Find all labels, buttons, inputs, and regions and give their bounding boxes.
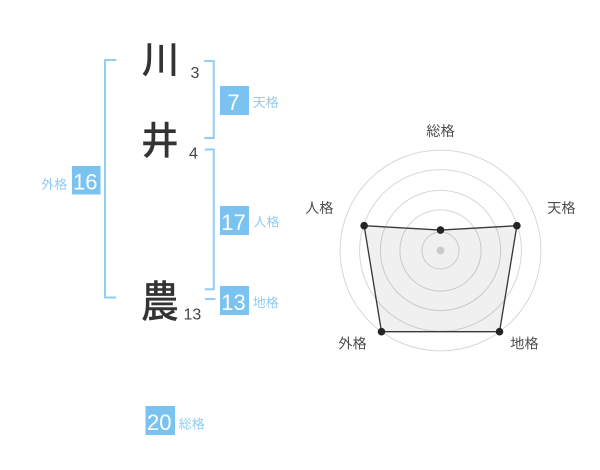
svg-text:20: 20 [147,410,171,435]
svg-text:3: 3 [191,65,200,82]
svg-text:17: 17 [221,210,245,235]
svg-text:13: 13 [184,307,202,324]
svg-text:4: 4 [189,146,198,163]
svg-text:16: 16 [73,170,97,195]
svg-text:13: 13 [221,290,245,315]
svg-text:7: 7 [227,90,239,115]
